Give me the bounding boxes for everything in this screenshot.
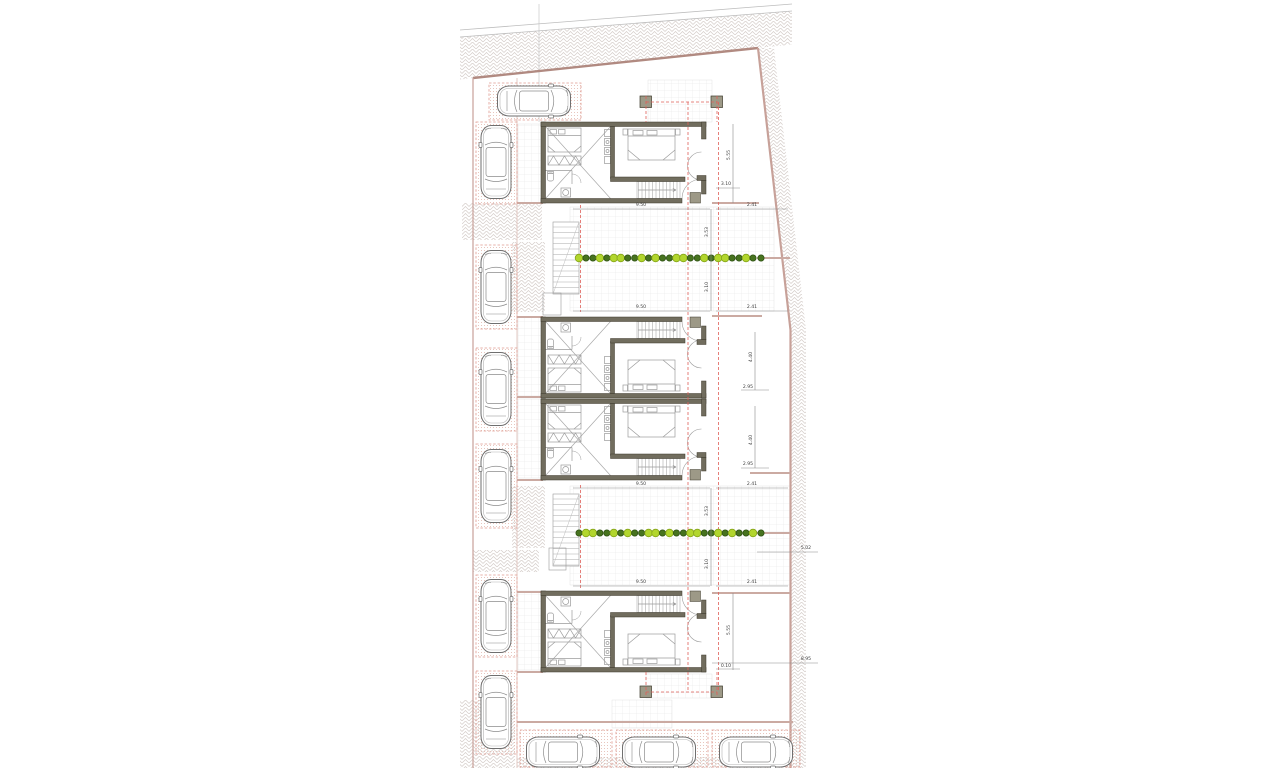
shrub-light — [700, 254, 708, 262]
verge-hatch-right — [758, 48, 806, 768]
dimension-label: 2.41 — [747, 304, 757, 310]
dimension-label: 3.10 — [704, 282, 710, 292]
dimension-label: 9.50 — [636, 579, 646, 585]
unit-2 — [541, 317, 706, 398]
dimension-label: 0.10 — [721, 663, 731, 669]
dimension-label: 4.40 — [748, 435, 754, 445]
shrub-dark — [687, 255, 693, 261]
dimension-label: 3.10 — [721, 181, 731, 187]
dimension-label: 5.55 — [726, 625, 732, 635]
shrub-dark — [576, 530, 582, 536]
shrub-dark — [666, 255, 672, 261]
dimension-label: 3.53 — [704, 227, 710, 237]
dimension-label: 2.41 — [747, 202, 757, 208]
stair-landing — [543, 293, 561, 315]
shrub-dark — [736, 255, 742, 261]
shrub-light — [582, 529, 590, 537]
dimension-label: 2.41 — [747, 579, 757, 585]
shrub-light — [673, 254, 681, 262]
shrub-light — [624, 529, 632, 537]
car — [479, 580, 513, 653]
dimension-label: 3.10 — [704, 559, 710, 569]
dimension-label: 3.53 — [704, 506, 710, 516]
shrub-light — [680, 254, 688, 262]
site-plan-drawing: 9.502.413.533.109.502.415.553.109.502.41… — [0, 0, 1280, 768]
shrub-light — [610, 254, 618, 262]
shrub-dark — [680, 530, 686, 536]
shrub-light — [666, 529, 674, 537]
paving-grid — [518, 591, 541, 670]
shrub-dark — [701, 530, 707, 536]
drawing-sheet: 9.502.413.533.109.502.415.553.109.502.41… — [0, 0, 1280, 768]
shrub-dark — [632, 530, 638, 536]
paving-grid — [612, 700, 672, 728]
shrub-light — [645, 529, 653, 537]
paving-grid — [570, 486, 790, 585]
hatch-area — [462, 203, 542, 240]
paving-grid — [518, 317, 541, 396]
shrub-dark — [659, 255, 665, 261]
paving-grid — [518, 124, 541, 203]
shrub-dark — [604, 255, 610, 261]
unit-1 — [541, 122, 706, 203]
shrub-light — [575, 254, 583, 262]
car — [527, 735, 600, 768]
dimension-label: 9.50 — [636, 304, 646, 310]
dimension-label: 4.40 — [748, 352, 754, 362]
shrub-dark — [758, 255, 764, 261]
shrub-light — [694, 529, 702, 537]
shrub-dark — [659, 530, 665, 536]
shrub-dark — [639, 530, 645, 536]
car — [479, 126, 513, 199]
shrub-light — [638, 254, 646, 262]
shrub-dark — [590, 255, 596, 261]
shrub-light — [721, 254, 729, 262]
shrub-light — [617, 254, 625, 262]
shrub-light — [596, 254, 604, 262]
dwelling-units-layer — [541, 96, 723, 698]
shrub-dark — [736, 530, 742, 536]
shrub-light — [728, 529, 736, 537]
dimension-label: 2.95 — [743, 461, 753, 467]
car — [623, 735, 696, 768]
shrub-dark — [758, 530, 764, 536]
dimension-label: 8.95 — [801, 656, 811, 662]
shrub-dark — [618, 530, 624, 536]
dimension-label: 9.50 — [636, 202, 646, 208]
shrub-dark — [597, 530, 603, 536]
car — [479, 353, 513, 426]
dimension-label: 5.55 — [726, 150, 732, 160]
shrub-light — [589, 529, 597, 537]
shrub-dark — [646, 255, 652, 261]
shrub-dark — [694, 255, 700, 261]
shrub-dark — [750, 255, 756, 261]
car — [498, 84, 571, 118]
car — [479, 450, 513, 523]
shrub-dark — [673, 530, 679, 536]
car — [720, 735, 793, 768]
shrub-dark — [625, 255, 631, 261]
shrub-light — [749, 529, 757, 537]
shrub-dark — [722, 530, 728, 536]
shrub-light — [652, 254, 660, 262]
shrub-light — [714, 254, 722, 262]
dimension-label: 2.41 — [747, 481, 757, 487]
unit-3 — [541, 399, 706, 480]
dimension-label: 5.02 — [801, 545, 811, 551]
hatch-area — [473, 550, 539, 572]
shrub-light — [652, 529, 660, 537]
shrub-light — [610, 529, 618, 537]
car — [479, 676, 513, 749]
verge-hatch-top — [460, 11, 792, 80]
dimension-label: 2.95 — [743, 384, 753, 390]
shrub-light — [714, 529, 722, 537]
dimension-label: 9.50 — [636, 481, 646, 487]
shrub-light — [687, 529, 695, 537]
shrub-dark — [729, 255, 735, 261]
unit-4 — [541, 591, 706, 672]
shrub-dark — [583, 255, 589, 261]
paving-grid — [646, 674, 712, 698]
shrub-light — [742, 254, 750, 262]
shrub-dark — [743, 530, 749, 536]
shrub-dark — [604, 530, 610, 536]
car — [479, 251, 513, 324]
paving-grid — [518, 399, 541, 478]
shrub-dark — [632, 255, 638, 261]
paving-grid — [648, 80, 712, 122]
